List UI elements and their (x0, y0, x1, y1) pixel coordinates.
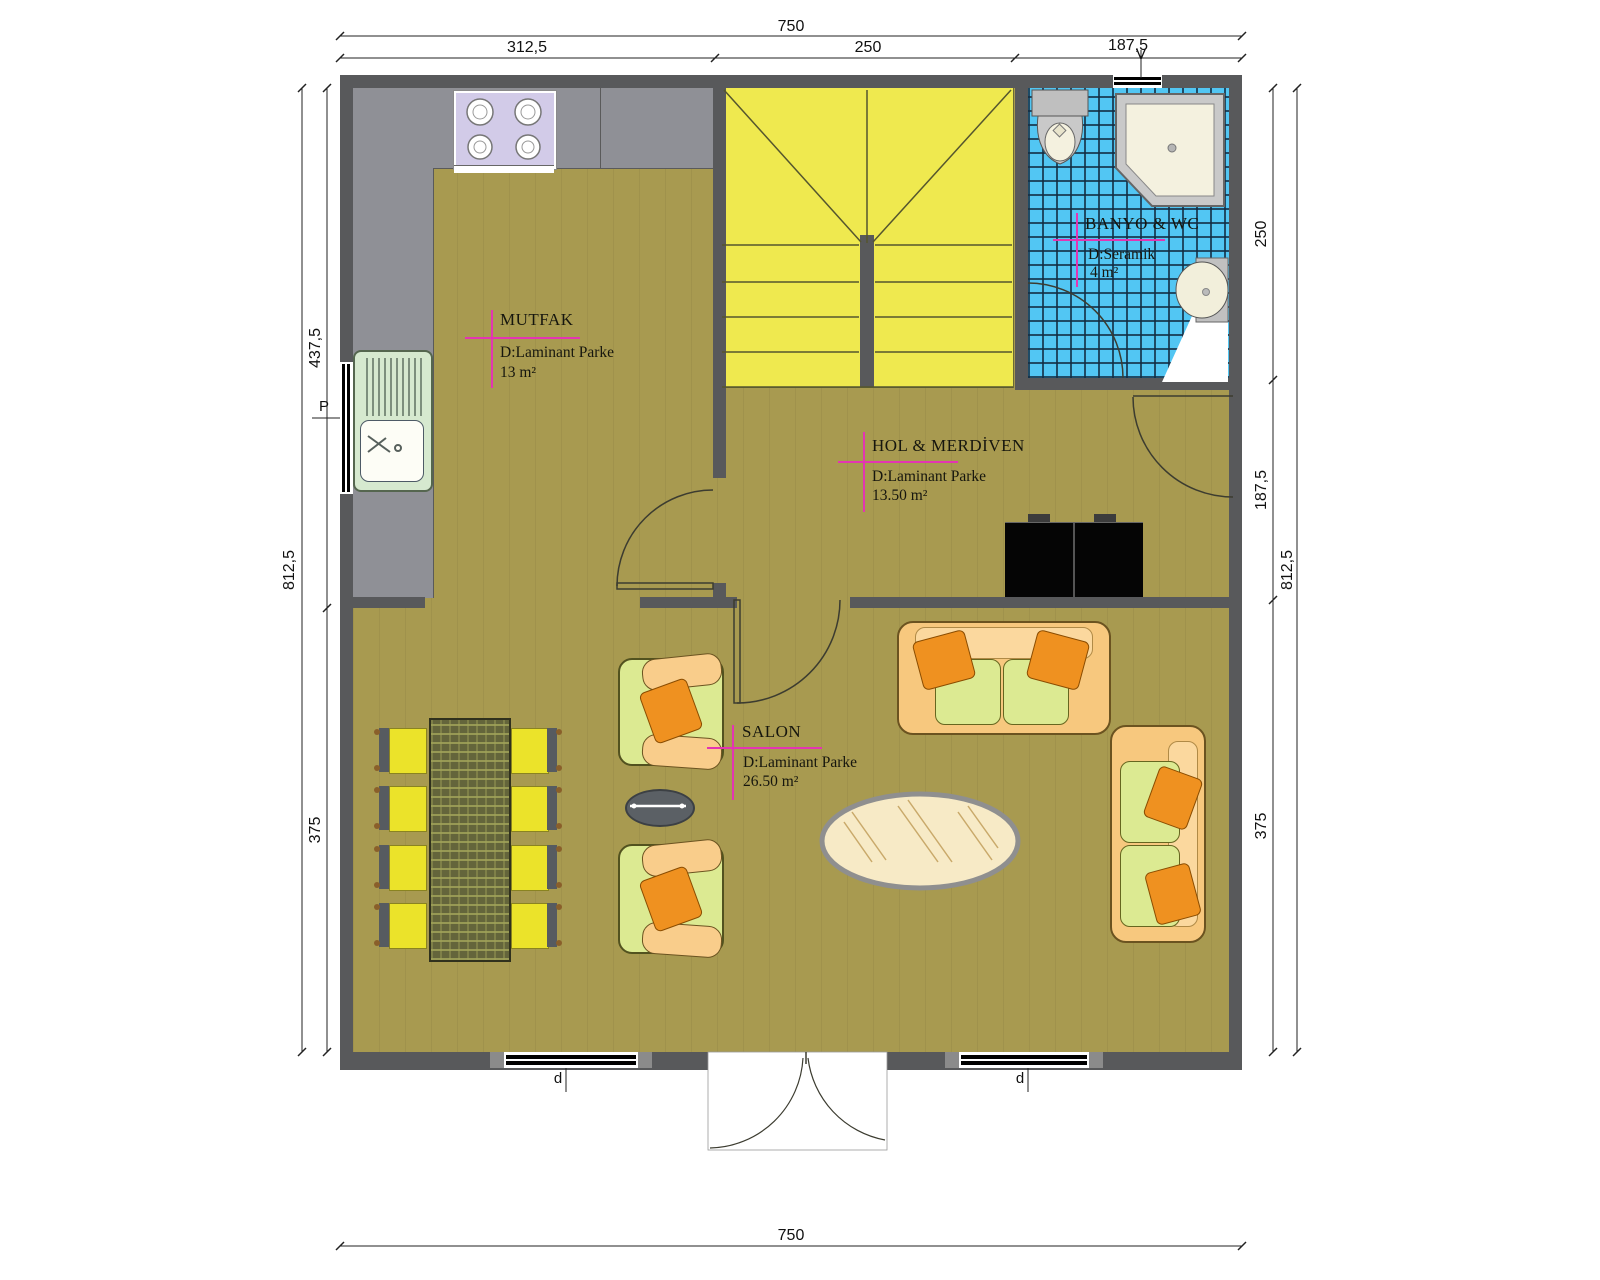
chair-arm-dot (374, 846, 380, 852)
dining-chair (511, 845, 549, 891)
window-top-bath (1113, 75, 1162, 88)
dining-chair (389, 786, 427, 832)
armchair-bolster (641, 921, 723, 959)
chair-arm-dot (374, 940, 380, 946)
dining-chair (511, 728, 549, 774)
sofa-right (1110, 725, 1206, 943)
window-jamb (1089, 1052, 1103, 1068)
marker-bottom-right-window: d (1016, 1070, 1024, 1087)
chair-arm-dot (556, 846, 562, 852)
counter-divider (600, 88, 601, 168)
dining-chair (389, 903, 427, 949)
window-jamb (945, 1052, 959, 1068)
room-area-hol: 13.50 m² (872, 487, 927, 505)
tv-cabinet-divider (1073, 523, 1075, 598)
wall-bath-bottom (1015, 378, 1242, 390)
wall-bottom (340, 1052, 1242, 1070)
dining-table (429, 718, 511, 962)
dining-chair-back (379, 845, 389, 889)
armchair-pillow (638, 865, 703, 933)
wall-top (340, 75, 1242, 88)
wall-right (1229, 75, 1242, 1070)
wall-kitchen-stair (713, 88, 726, 478)
chair-arm-dot (374, 787, 380, 793)
kitchen-sink-basin (360, 420, 424, 482)
marker-top-window: V (1136, 46, 1146, 63)
dining-chair (389, 845, 427, 891)
stair-center-wall (860, 235, 874, 387)
chair-arm-dot (556, 940, 562, 946)
dim-right-seg3: 375 (1253, 813, 1271, 840)
room-area-salon: 26.50 m² (743, 773, 798, 791)
window-bottom-left (504, 1052, 638, 1068)
chair-arm-dot (556, 787, 562, 793)
chair-arm-dot (374, 765, 380, 771)
window-bottom-right (959, 1052, 1089, 1068)
window-jamb (638, 1052, 652, 1068)
stove (454, 91, 556, 169)
chair-arm-dot (374, 823, 380, 829)
marker-bottom-left-window: d (554, 1070, 562, 1087)
window-bar (347, 364, 350, 492)
room-floor-banyo: D:Seramik (1088, 246, 1155, 264)
armchair (618, 658, 724, 766)
dim-top-seg2: 250 (855, 39, 882, 57)
chair-arm-dot (374, 882, 380, 888)
sofa-top (897, 621, 1111, 735)
window-bar (961, 1061, 1087, 1065)
room-name-banyo: BANYO & WC (1085, 214, 1199, 234)
window-bar (961, 1055, 1087, 1059)
dining-chair (389, 728, 427, 774)
wall-left (340, 75, 353, 1070)
armchair (618, 844, 724, 954)
dim-left-total: 812,5 (281, 550, 299, 590)
window-bar (506, 1061, 636, 1065)
stove-front (454, 165, 554, 173)
chair-arm-dot (374, 904, 380, 910)
marker-left-window: P (319, 398, 329, 415)
dining-chair-back (379, 903, 389, 947)
room-name-hol: HOL & MERDİVEN (872, 436, 1025, 456)
dim-left-seg1: 437,5 (307, 328, 325, 368)
window-bar (1114, 77, 1161, 80)
chair-arm-dot (556, 882, 562, 888)
room-name-salon: SALON (742, 722, 801, 742)
dining-chair (511, 786, 549, 832)
dim-top-seg1: 312,5 (507, 39, 547, 57)
dim-right-seg1: 250 (1253, 221, 1271, 248)
chair-arm-dot (556, 765, 562, 771)
tv-cabinet (1005, 522, 1143, 598)
wall-hall-salon-mid (640, 597, 737, 608)
wall-hall-salon-left (340, 597, 425, 608)
chair-arm-dot (374, 729, 380, 735)
chair-arm-dot (556, 904, 562, 910)
wall-hall-salon-right (850, 597, 1242, 608)
window-left-sink (340, 362, 353, 494)
wall-bath-left (1015, 88, 1028, 390)
dim-bottom-total: 750 (778, 1227, 805, 1245)
room-floor-salon: D:Laminant Parke (743, 754, 857, 772)
room-floor-hol: D:Laminant Parke (872, 468, 986, 486)
dim-top-total: 750 (778, 18, 805, 36)
window-bar (1114, 82, 1161, 85)
side-table (625, 789, 695, 827)
window-bar (342, 364, 345, 492)
chair-arm-dot (556, 823, 562, 829)
dim-right-total: 812,5 (1279, 550, 1297, 590)
dining-chair-back (379, 786, 389, 830)
room-name-mutfak: MUTFAK (500, 310, 574, 330)
window-jamb (490, 1052, 504, 1068)
window-bar (506, 1055, 636, 1059)
chair-arm-dot (556, 729, 562, 735)
dining-chair-back (379, 728, 389, 772)
floor-plan-canvas: MUTFAK D:Laminant Parke 13 m² BANYO & WC… (0, 0, 1600, 1280)
room-area-banyo: 4 m² (1090, 264, 1118, 282)
room-floor-mutfak: D:Laminant Parke (500, 344, 614, 362)
room-area-mutfak: 13 m² (500, 364, 536, 382)
dim-right-seg2: 187,5 (1253, 470, 1271, 510)
dining-chair (511, 903, 549, 949)
dim-left-seg2: 375 (307, 817, 325, 844)
armchair-bolster (641, 733, 723, 771)
